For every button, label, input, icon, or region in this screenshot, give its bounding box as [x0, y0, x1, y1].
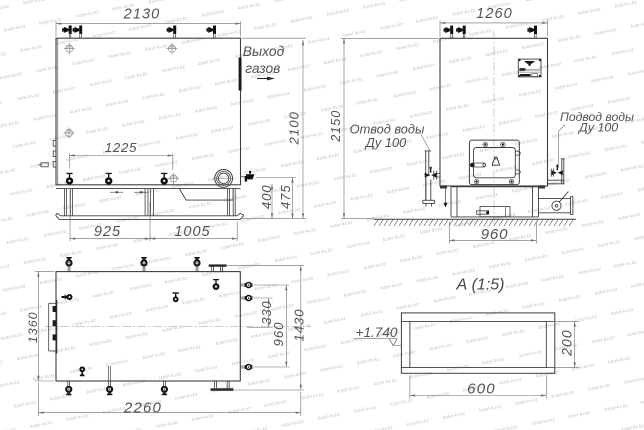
svg-text:1005: 1005: [174, 224, 210, 240]
svg-text:2100: 2100: [287, 111, 302, 145]
svg-text:газов: газов: [245, 61, 280, 76]
svg-text:960: 960: [271, 321, 286, 346]
svg-text:1430: 1430: [292, 309, 307, 342]
svg-text:475: 475: [278, 184, 293, 209]
svg-text:400: 400: [259, 184, 274, 209]
svg-text:2260: 2260: [123, 400, 162, 417]
svg-text:1225: 1225: [105, 140, 138, 155]
svg-text:+1.740: +1.740: [356, 325, 398, 340]
svg-text:600: 600: [467, 381, 496, 398]
svg-text:200: 200: [559, 329, 575, 357]
svg-text:Ду 100: Ду 100: [364, 135, 407, 150]
svg-text:А (1:5): А (1:5): [455, 277, 504, 294]
svg-text:2150: 2150: [329, 110, 343, 143]
svg-text:960: 960: [481, 226, 508, 243]
svg-text:1260: 1260: [476, 6, 513, 22]
svg-text:925: 925: [94, 224, 121, 240]
svg-text:330: 330: [259, 300, 274, 324]
svg-text:Ду 100: Ду 100: [577, 120, 618, 134]
svg-text:1360: 1360: [26, 312, 40, 344]
svg-text:Выход: Выход: [243, 44, 285, 59]
svg-text:2130: 2130: [123, 6, 161, 22]
